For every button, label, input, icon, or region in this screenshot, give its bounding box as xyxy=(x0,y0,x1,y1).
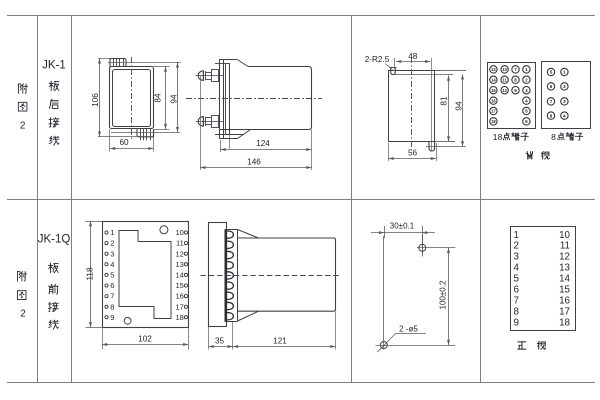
svg-text:5: 5 xyxy=(110,271,114,280)
svg-text:18: 18 xyxy=(559,317,570,328)
svg-text:2: 2 xyxy=(563,84,566,89)
svg-text:9: 9 xyxy=(514,88,517,93)
svg-text:60: 60 xyxy=(119,138,129,147)
svg-text:2: 2 xyxy=(525,78,528,83)
svg-text:5: 5 xyxy=(514,274,520,285)
svg-text:35: 35 xyxy=(215,337,225,346)
svg-text:12: 12 xyxy=(175,249,183,258)
svg-text:3: 3 xyxy=(514,252,520,263)
svg-text:4: 4 xyxy=(563,113,566,118)
svg-text:6: 6 xyxy=(550,84,553,89)
svg-text:7: 7 xyxy=(514,295,519,306)
svg-text:11: 11 xyxy=(560,241,570,252)
svg-text:3: 3 xyxy=(525,88,528,93)
svg-text:1: 1 xyxy=(110,228,114,237)
svg-text:124: 124 xyxy=(256,139,270,148)
svg-text:8: 8 xyxy=(550,113,553,118)
svg-text:56: 56 xyxy=(408,148,418,157)
svg-text:2: 2 xyxy=(20,121,26,132)
svg-text:84: 84 xyxy=(154,93,163,103)
svg-text:16: 16 xyxy=(559,295,570,306)
svg-text:100±0.2: 100±0.2 xyxy=(439,280,448,309)
svg-text:4: 4 xyxy=(514,263,520,274)
svg-text:1: 1 xyxy=(514,230,519,241)
svg-text:11: 11 xyxy=(176,239,184,248)
svg-text:146: 146 xyxy=(247,157,261,166)
svg-text:106: 106 xyxy=(91,93,100,107)
svg-text:48: 48 xyxy=(408,52,418,61)
svg-text:13: 13 xyxy=(175,260,183,269)
svg-text:17: 17 xyxy=(491,109,496,114)
svg-text:3: 3 xyxy=(110,249,114,258)
svg-text:118: 118 xyxy=(85,267,94,280)
svg-text:121: 121 xyxy=(273,337,287,346)
svg-text:4: 4 xyxy=(110,260,114,269)
svg-text:10: 10 xyxy=(559,230,570,241)
svg-text:17: 17 xyxy=(175,302,183,311)
svg-text:7: 7 xyxy=(550,99,553,104)
svg-text:15: 15 xyxy=(175,281,183,290)
svg-text:8: 8 xyxy=(514,78,517,83)
svg-text:1: 1 xyxy=(563,70,566,75)
svg-text:18: 18 xyxy=(491,119,496,124)
svg-text:10: 10 xyxy=(502,67,507,72)
svg-text:2-R2.5: 2-R2.5 xyxy=(365,55,390,64)
svg-text:5: 5 xyxy=(525,109,528,114)
svg-text:18: 18 xyxy=(175,313,183,322)
svg-text:14: 14 xyxy=(491,78,496,83)
svg-text:6: 6 xyxy=(525,119,528,124)
svg-text:16: 16 xyxy=(175,292,183,301)
svg-text:10: 10 xyxy=(175,228,183,237)
svg-text:2 -ø5: 2 -ø5 xyxy=(399,325,418,334)
svg-text:8: 8 xyxy=(110,302,114,311)
svg-text:13: 13 xyxy=(559,263,570,274)
svg-text:15: 15 xyxy=(491,88,496,93)
svg-text:30±0.1: 30±0.1 xyxy=(390,222,415,231)
svg-text:81: 81 xyxy=(439,96,448,106)
svg-text:JK-1: JK-1 xyxy=(42,60,66,72)
svg-text:16: 16 xyxy=(491,98,496,103)
svg-text:4: 4 xyxy=(525,98,528,103)
svg-text:13: 13 xyxy=(491,67,496,72)
svg-text:7: 7 xyxy=(514,67,517,72)
svg-text:17: 17 xyxy=(559,306,570,317)
svg-text:8: 8 xyxy=(551,132,556,142)
svg-text:94: 94 xyxy=(170,94,179,104)
svg-text:8: 8 xyxy=(514,306,520,317)
svg-text:18: 18 xyxy=(493,132,503,142)
svg-text:102: 102 xyxy=(138,334,152,343)
svg-text:3: 3 xyxy=(563,99,566,104)
svg-text:9: 9 xyxy=(110,313,114,322)
svg-text:14: 14 xyxy=(175,271,183,280)
svg-text:12: 12 xyxy=(502,88,507,93)
svg-text:7: 7 xyxy=(110,292,114,301)
svg-text:94: 94 xyxy=(454,101,463,111)
svg-text:5: 5 xyxy=(550,70,553,75)
svg-text:11: 11 xyxy=(502,78,507,83)
svg-text:2: 2 xyxy=(110,239,114,248)
svg-text:2: 2 xyxy=(514,241,519,252)
svg-text:14: 14 xyxy=(559,274,570,285)
svg-text:15: 15 xyxy=(559,285,570,296)
svg-text:JK-1Q: JK-1Q xyxy=(38,234,71,246)
svg-text:9: 9 xyxy=(514,317,519,328)
svg-text:2: 2 xyxy=(20,309,26,320)
svg-text:6: 6 xyxy=(514,285,520,296)
svg-text:1: 1 xyxy=(525,67,528,72)
svg-text:12: 12 xyxy=(559,252,570,263)
svg-text:6: 6 xyxy=(110,281,114,290)
